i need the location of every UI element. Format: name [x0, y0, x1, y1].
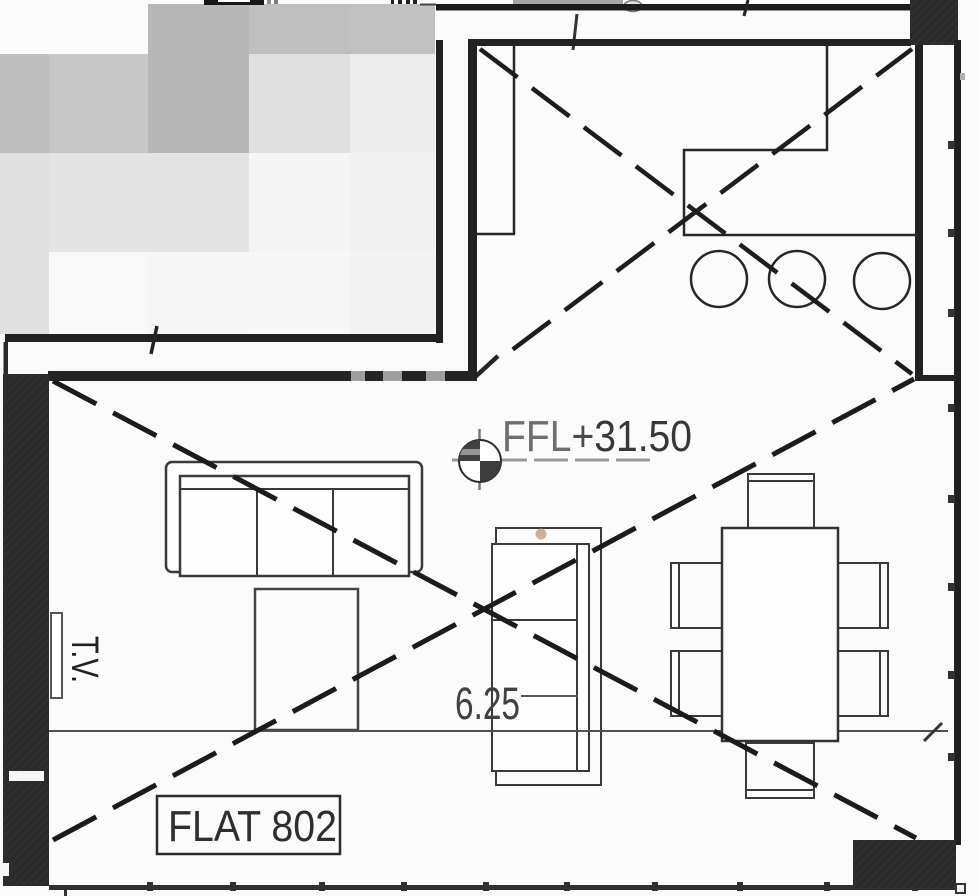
svg-text:FFL+31.50: FFL+31.50: [502, 412, 692, 461]
svg-text:FLAT 802: FLAT 802: [168, 802, 337, 851]
svg-text:6.25: 6.25: [455, 678, 520, 729]
svg-text:T.V.: T.V.: [63, 636, 105, 683]
